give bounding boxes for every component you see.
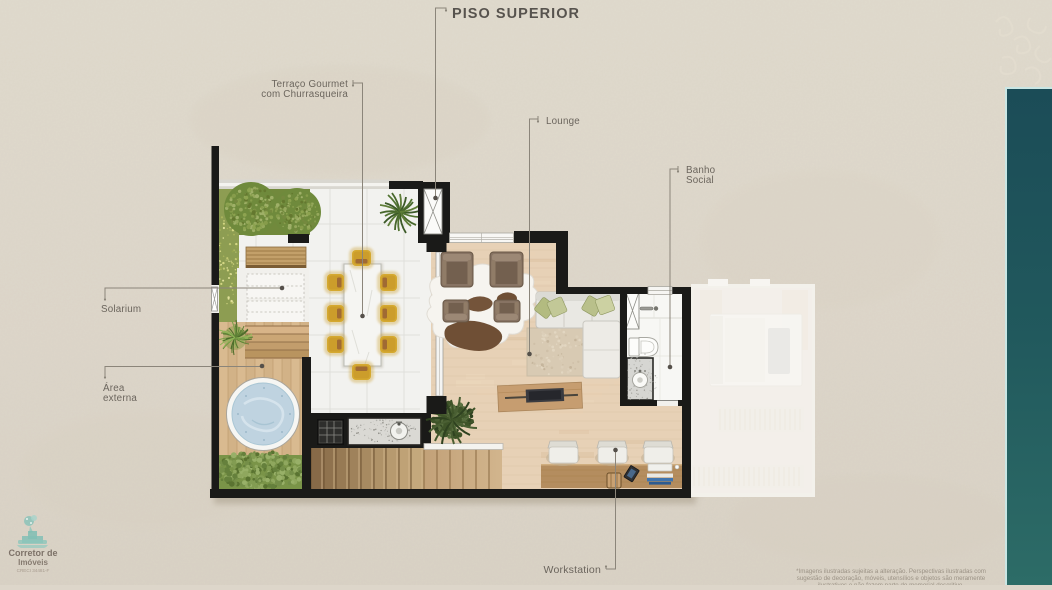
svg-text:com Churrasqueira: com Churrasqueira [261, 89, 348, 100]
svg-text:Solarium: Solarium [101, 304, 141, 315]
svg-text:Corretor de: Corretor de [8, 548, 57, 558]
svg-text:sugestão de decoração, móveis,: sugestão de decoração, móveis, utensílio… [797, 575, 986, 582]
svg-text:Social: Social [686, 175, 714, 186]
svg-text:CRECI 34481-F: CRECI 34481-F [17, 568, 50, 573]
svg-text:externa: externa [103, 393, 137, 404]
svg-text:Workstation: Workstation [544, 564, 601, 576]
svg-text:Imóveis: Imóveis [18, 558, 48, 567]
svg-text:Lounge: Lounge [546, 116, 580, 127]
svg-text:*Imagens ilustradas sujeitas a: *Imagens ilustradas sujeitas a alteração… [796, 568, 986, 575]
svg-text:PISO SUPERIOR: PISO SUPERIOR [452, 6, 580, 22]
